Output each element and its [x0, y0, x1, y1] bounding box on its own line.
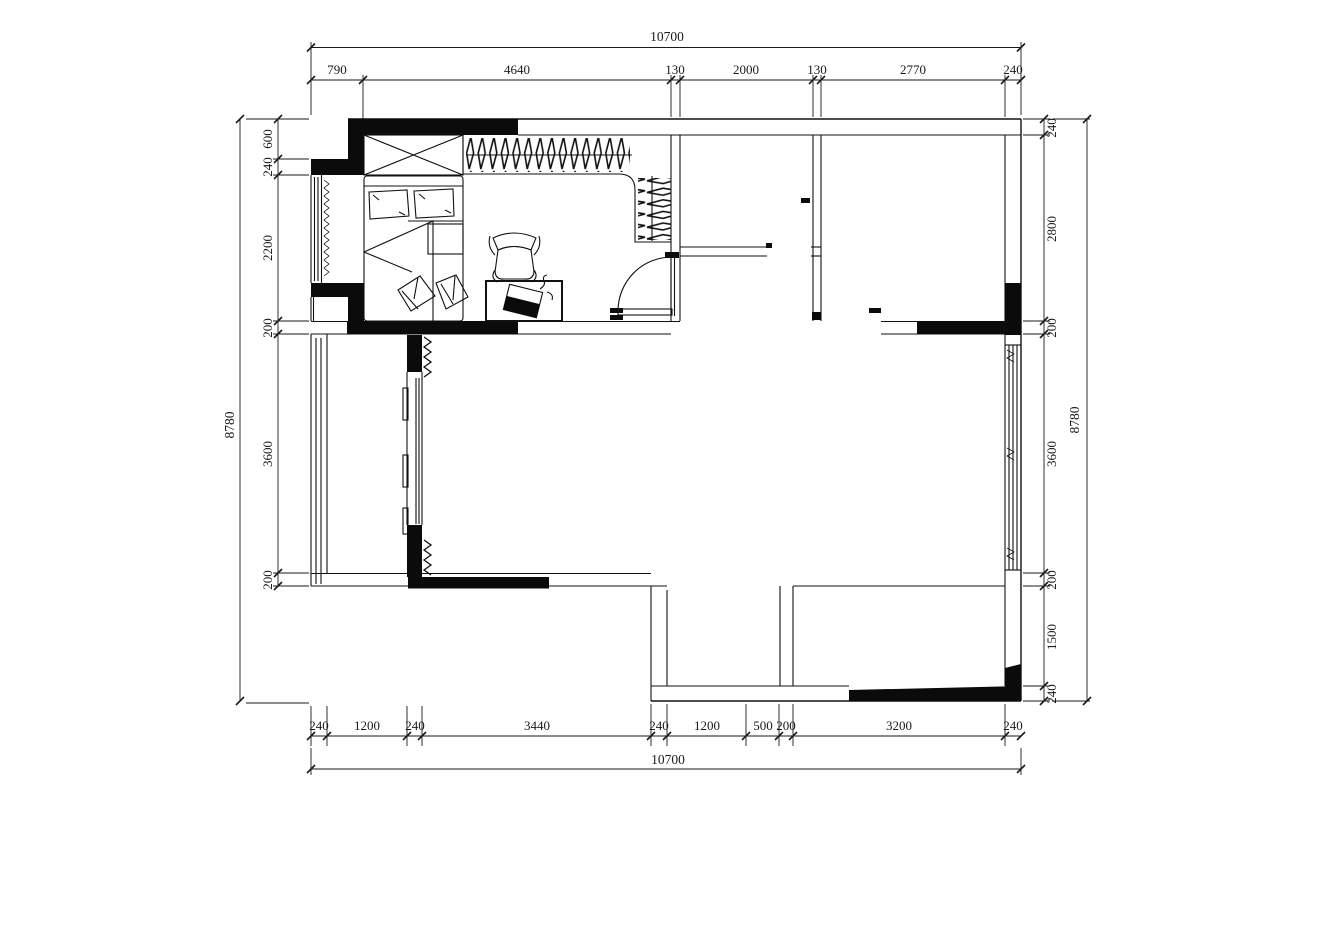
svg-text:790: 790	[327, 62, 347, 77]
svg-text:240: 240	[649, 718, 669, 733]
svg-text:3600: 3600	[260, 441, 275, 467]
svg-text:2200: 2200	[260, 235, 275, 261]
svg-text:2000: 2000	[733, 62, 759, 77]
svg-text:240: 240	[1003, 718, 1023, 733]
svg-text:240: 240	[309, 718, 329, 733]
svg-text:10700: 10700	[650, 29, 684, 44]
svg-text:3600: 3600	[1044, 441, 1059, 467]
svg-text:240: 240	[405, 718, 425, 733]
svg-text:240: 240	[1044, 684, 1059, 704]
svg-text:8780: 8780	[1067, 406, 1082, 433]
svg-text:2800: 2800	[1044, 216, 1059, 242]
svg-text:200: 200	[1044, 570, 1059, 590]
svg-text:3200: 3200	[886, 718, 912, 733]
svg-text:200: 200	[260, 570, 275, 590]
svg-text:600: 600	[260, 129, 275, 149]
svg-text:8780: 8780	[222, 411, 237, 438]
svg-text:500: 500	[753, 718, 773, 733]
svg-text:200: 200	[1044, 318, 1059, 338]
svg-text:200: 200	[260, 318, 275, 338]
svg-text:130: 130	[665, 62, 685, 77]
svg-text:240: 240	[260, 157, 275, 177]
svg-text:240: 240	[1003, 62, 1023, 77]
svg-text:4640: 4640	[504, 62, 530, 77]
svg-text:130: 130	[807, 62, 827, 77]
svg-text:1500: 1500	[1044, 624, 1059, 650]
svg-text:1200: 1200	[354, 718, 380, 733]
svg-text:200: 200	[776, 718, 796, 733]
svg-text:240: 240	[1044, 118, 1059, 138]
svg-text:3440: 3440	[524, 718, 550, 733]
svg-text:1200: 1200	[694, 718, 720, 733]
svg-text:10700: 10700	[651, 752, 685, 767]
svg-text:2770: 2770	[900, 62, 926, 77]
